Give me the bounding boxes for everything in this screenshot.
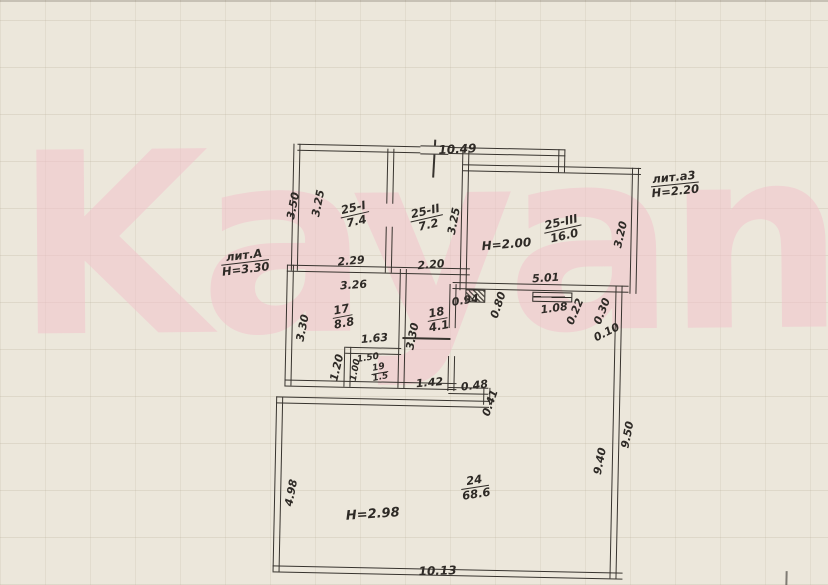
wall-17-18 [397, 269, 406, 388]
main-title: лит.А Н=3.30 [220, 246, 271, 279]
room-label-25-2: 25-II 7.2 [408, 201, 447, 235]
main-height-label: Н=3.30 [221, 260, 270, 279]
room-area: 8.8 [333, 315, 356, 332]
floor-plan-photo: Kayan лит.а3 Н= [0, 0, 828, 585]
room-label-17: 17 8.8 [330, 301, 355, 332]
dim-room25-3-height: 3.20 [611, 220, 630, 249]
dim-room24-right-outer: 9.50 [618, 420, 636, 449]
wall-annex-right [629, 168, 639, 294]
dim-niche-depth: 0.80 [488, 290, 509, 320]
wall-room24-top [276, 396, 489, 407]
room-label-24: 24 68.6 [459, 472, 491, 503]
wall-left-middle [284, 265, 294, 386]
dim-left-outer-height: 3.50 [284, 191, 302, 220]
room-area: 4.1 [428, 318, 451, 335]
annex-title: лит.а3 Н=2.20 [650, 169, 700, 201]
dim-room25-1-width: 2.29 [337, 253, 365, 268]
room-label-19: 19 1.5 [370, 362, 390, 385]
wall-top-connector [558, 149, 565, 172]
dim-wall-step-b: 0.30 [591, 296, 613, 326]
dim-room24-left-height: 4.98 [282, 478, 300, 507]
dim-room25-1-height: 3.25 [309, 189, 327, 218]
room-area: 68.6 [461, 486, 491, 504]
dim-bottom-width: 10.13 [418, 563, 456, 578]
dim-niche-width: 0.94 [451, 292, 480, 309]
room-label-18: 18 4.1 [425, 304, 450, 335]
wall-25-1-2-upper [386, 149, 394, 204]
wall-room24-left [273, 396, 284, 571]
edge-mark-bottom-right [785, 571, 787, 585]
height-note-room24: Н=2.98 [345, 505, 400, 524]
dim-room24-right-inner: 9.40 [591, 447, 609, 476]
dim-top-width: 10.49 [438, 141, 477, 157]
height-note-middle: Н=2.00 [481, 235, 532, 253]
dim-room25-3-width: 5.01 [532, 271, 560, 286]
floor-plan-drawing: лит.а3 Н=2.20 лит.А Н=3.30 Н=2.00 Н=2.98… [0, 0, 828, 585]
room-label-25-1: 25-I 7.4 [338, 198, 372, 231]
dim-room18-height: 3.30 [403, 322, 421, 351]
dim-closet-offset: 1.63 [360, 331, 388, 346]
wall-25-1-2-lower [385, 227, 393, 273]
room-label-25-3: 25-III 16.0 [541, 212, 584, 247]
dim-room17-width: 3.26 [340, 278, 368, 293]
annex-height-label: Н=2.20 [651, 182, 700, 200]
dim-passage-width: 1.42 [415, 375, 443, 390]
dim-window-width: 1.08 [540, 300, 569, 317]
dim-room25-2-width: 2.20 [417, 257, 445, 272]
wall-18-right-lower [447, 356, 455, 391]
wall-annex-top [463, 164, 641, 175]
wall-room19-left [343, 347, 351, 387]
dim-room17-height: 3.30 [294, 313, 312, 342]
